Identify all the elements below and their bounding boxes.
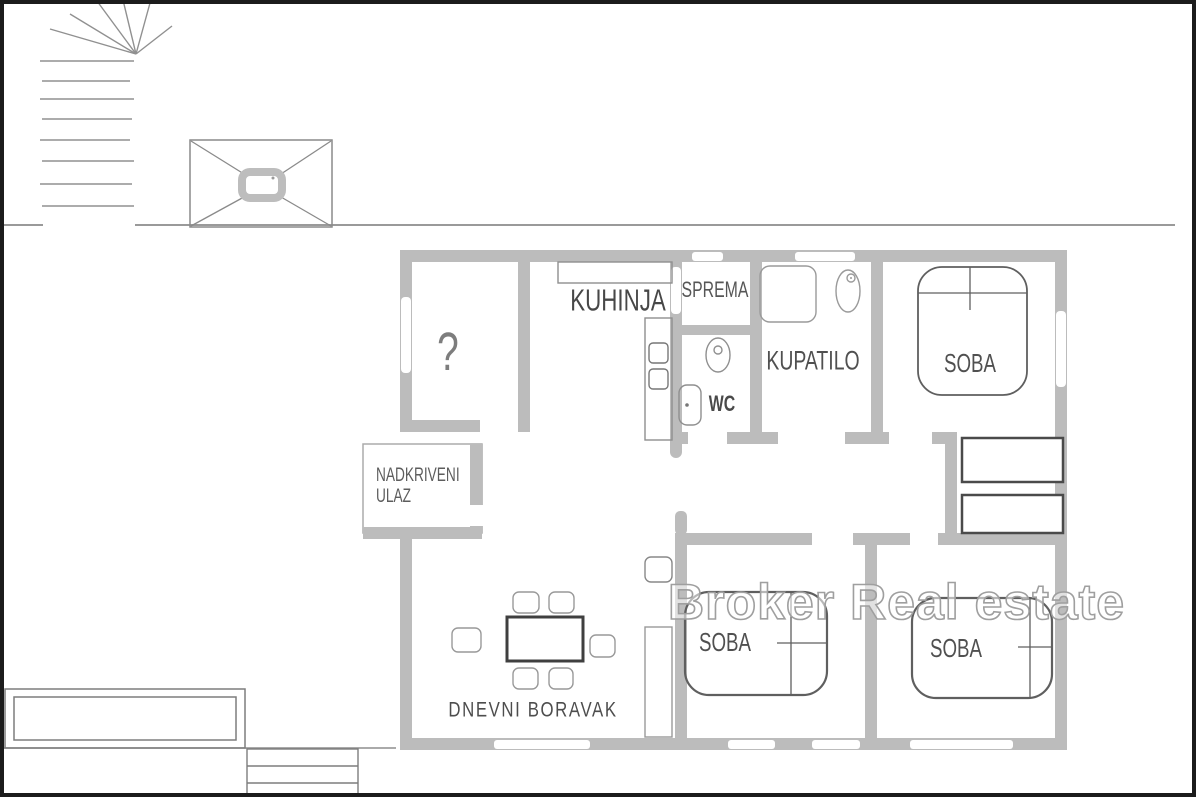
room-label-pantry: SPREMA <box>682 279 749 301</box>
wall-storage-room-right <box>518 262 530 432</box>
kitchen-counter-top <box>558 262 672 283</box>
room-label-unknown: ? <box>437 325 459 379</box>
exterior-steps <box>247 749 358 795</box>
covered-entrance-line1: NADKRIVENI <box>376 465 460 486</box>
door-hall-bedroom-middle <box>812 532 853 546</box>
window-bottom-middle-b <box>812 740 860 749</box>
closet-icon <box>962 438 1063 482</box>
room-label-bedroom-right: SOBA <box>930 635 982 661</box>
cabinet-icon <box>645 627 672 737</box>
window-right <box>1056 311 1066 387</box>
covered-entrance-line2: ULAZ <box>376 486 460 507</box>
chair-icon <box>452 628 481 652</box>
wall-left-lower <box>400 530 412 750</box>
window-bottom-middle-a <box>728 740 775 749</box>
toilet-icon <box>679 385 701 425</box>
room-label-wc: WC <box>709 393 735 415</box>
door-hall-bathroom <box>778 431 845 445</box>
wall-pantry-bottom <box>682 325 750 335</box>
door-entrance <box>469 505 483 526</box>
faucet-icon <box>714 346 722 354</box>
floor-plan-page: KUHINJA SPREMA KUPATILO WC SOBA SOBA SOB… <box>0 0 1200 800</box>
staircase <box>40 0 172 206</box>
window-top-pantry <box>692 252 723 261</box>
bathroom-fixtures <box>760 266 860 322</box>
sink-basin-icon <box>649 369 668 389</box>
door-hall-bedroom-top <box>889 431 932 445</box>
chair-icon <box>549 592 574 613</box>
chimney-icon <box>242 172 282 198</box>
wall-bathroom-bedroom-divider <box>871 262 883 444</box>
roof-window <box>190 140 332 227</box>
window-bottom-living <box>494 740 590 749</box>
room-label-bedroom-top: SOBA <box>944 350 996 376</box>
chair-icon <box>513 668 538 689</box>
watermark: Broker Real estate <box>668 577 1125 627</box>
room-label-living-room: DNEVNI BORAVAK <box>448 700 617 721</box>
floor-plan-drawing <box>0 0 1200 800</box>
chair-icon <box>549 668 573 689</box>
chair-icon <box>513 592 539 613</box>
wall-storage-room-bottom <box>400 420 480 432</box>
wall-entrance-bottom <box>363 527 482 539</box>
dining-table-icon <box>507 617 583 661</box>
wall-top <box>400 250 1067 262</box>
door-hall-bedroom-right <box>910 532 938 546</box>
wall-hall-right <box>945 444 957 533</box>
shower-icon <box>760 266 816 322</box>
closets <box>962 438 1063 533</box>
planter <box>5 689 245 748</box>
closet-icon <box>962 495 1063 533</box>
room-label-bedroom-middle: SOBA <box>699 629 751 655</box>
door-hall-wc <box>688 431 727 445</box>
washbasin-icon <box>706 338 730 372</box>
chair-icon <box>590 635 615 657</box>
room-label-kitchen: KUHINJA <box>570 285 666 316</box>
sink-basin-icon <box>649 343 668 363</box>
wall-hall-bottom <box>675 533 1067 545</box>
wall-hall-nub <box>675 511 687 535</box>
room-label-bathroom: KUPATILO <box>766 348 859 375</box>
window-bottom-right <box>910 740 1013 749</box>
window-top-bathroom <box>795 252 855 261</box>
room-label-covered-entrance: NADKRIVENI ULAZ <box>376 465 460 507</box>
window-left <box>401 297 411 373</box>
